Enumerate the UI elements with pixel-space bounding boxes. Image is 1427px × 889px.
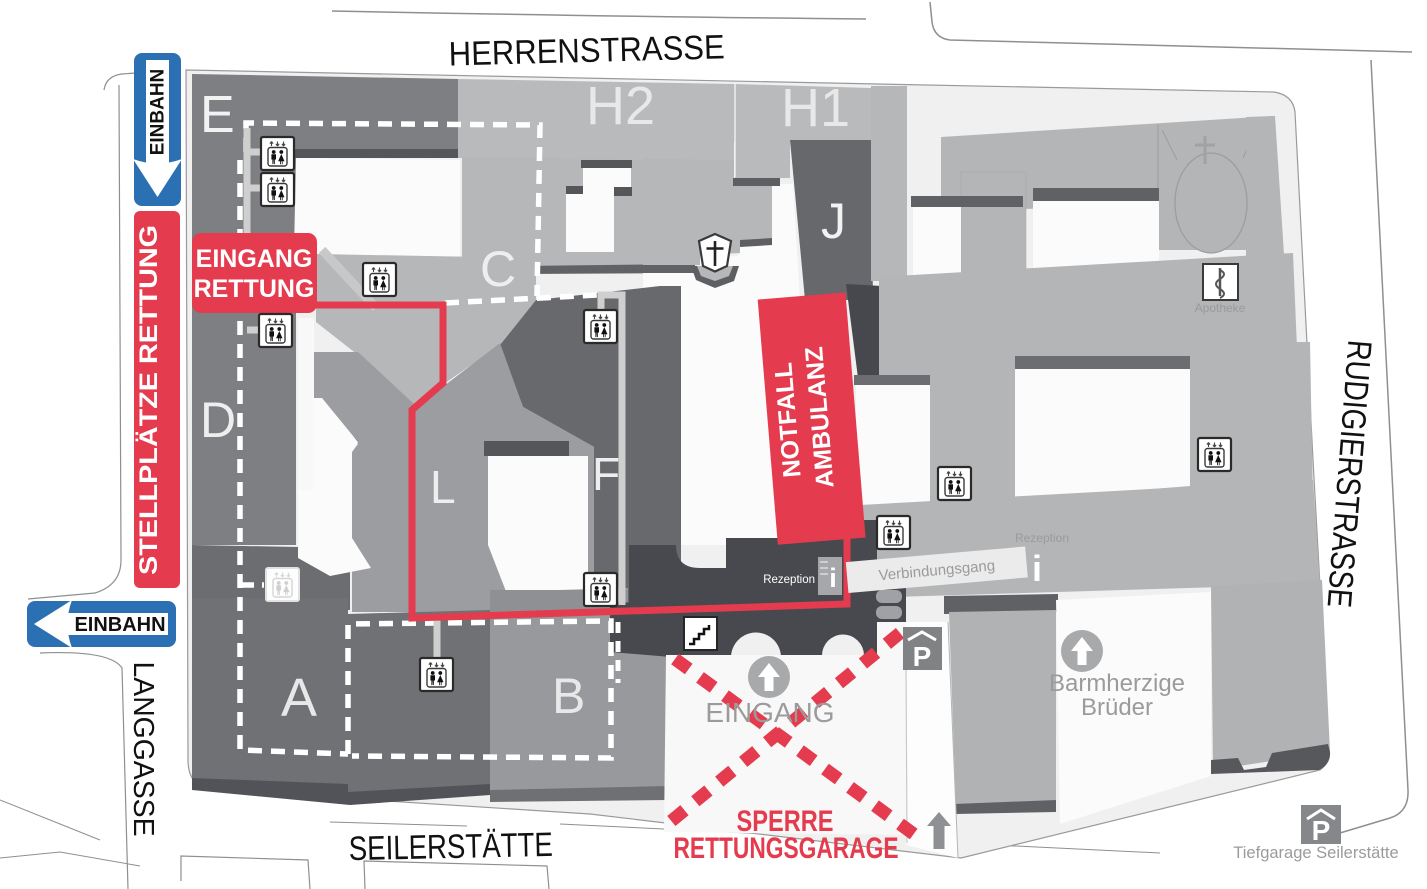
- svg-text:F: F: [592, 448, 620, 500]
- svg-text:Barmherzige: Barmherzige: [1049, 670, 1185, 697]
- svg-text:A: A: [281, 668, 317, 728]
- svg-text:i: i: [829, 563, 837, 593]
- svg-text:SEILERSTÄTTE: SEILERSTÄTTE: [348, 826, 553, 868]
- svg-text:H1: H1: [781, 78, 850, 138]
- svg-text:EINGANG: EINGANG: [705, 697, 834, 728]
- svg-text:P: P: [913, 641, 932, 672]
- svg-text:Tiefgarage Seilerstätte: Tiefgarage Seilerstätte: [1233, 844, 1398, 862]
- svg-text:P: P: [1312, 815, 1331, 846]
- svg-text:HERRENSTRASSE: HERRENSTRASSE: [448, 28, 725, 73]
- svg-text:i: i: [1032, 548, 1042, 589]
- svg-text:H2: H2: [586, 76, 655, 136]
- svg-text:Rezeption: Rezeption: [763, 574, 815, 586]
- svg-text:EINGANG: EINGANG: [196, 245, 313, 273]
- svg-text:D: D: [200, 392, 236, 448]
- svg-text:EINBAHN: EINBAHN: [148, 69, 169, 156]
- svg-text:C: C: [480, 241, 516, 297]
- svg-text:Brüder: Brüder: [1081, 694, 1153, 721]
- svg-text:RETTUNG: RETTUNG: [194, 275, 315, 303]
- svg-text:E: E: [200, 86, 235, 144]
- svg-text:LANGGASSE: LANGGASSE: [127, 662, 159, 837]
- svg-text:STELLPLÄTZE RETTUNG: STELLPLÄTZE RETTUNG: [135, 225, 163, 575]
- svg-text:RETTUNGSGARAGE: RETTUNGSGARAGE: [674, 832, 899, 865]
- svg-text:J: J: [821, 193, 846, 249]
- svg-text:L: L: [430, 461, 456, 513]
- svg-text:B: B: [552, 668, 585, 724]
- svg-text:Apotheke: Apotheke: [1195, 301, 1246, 315]
- svg-text:Rezeption: Rezeption: [1015, 531, 1069, 545]
- svg-text:EINBAHN: EINBAHN: [74, 614, 165, 636]
